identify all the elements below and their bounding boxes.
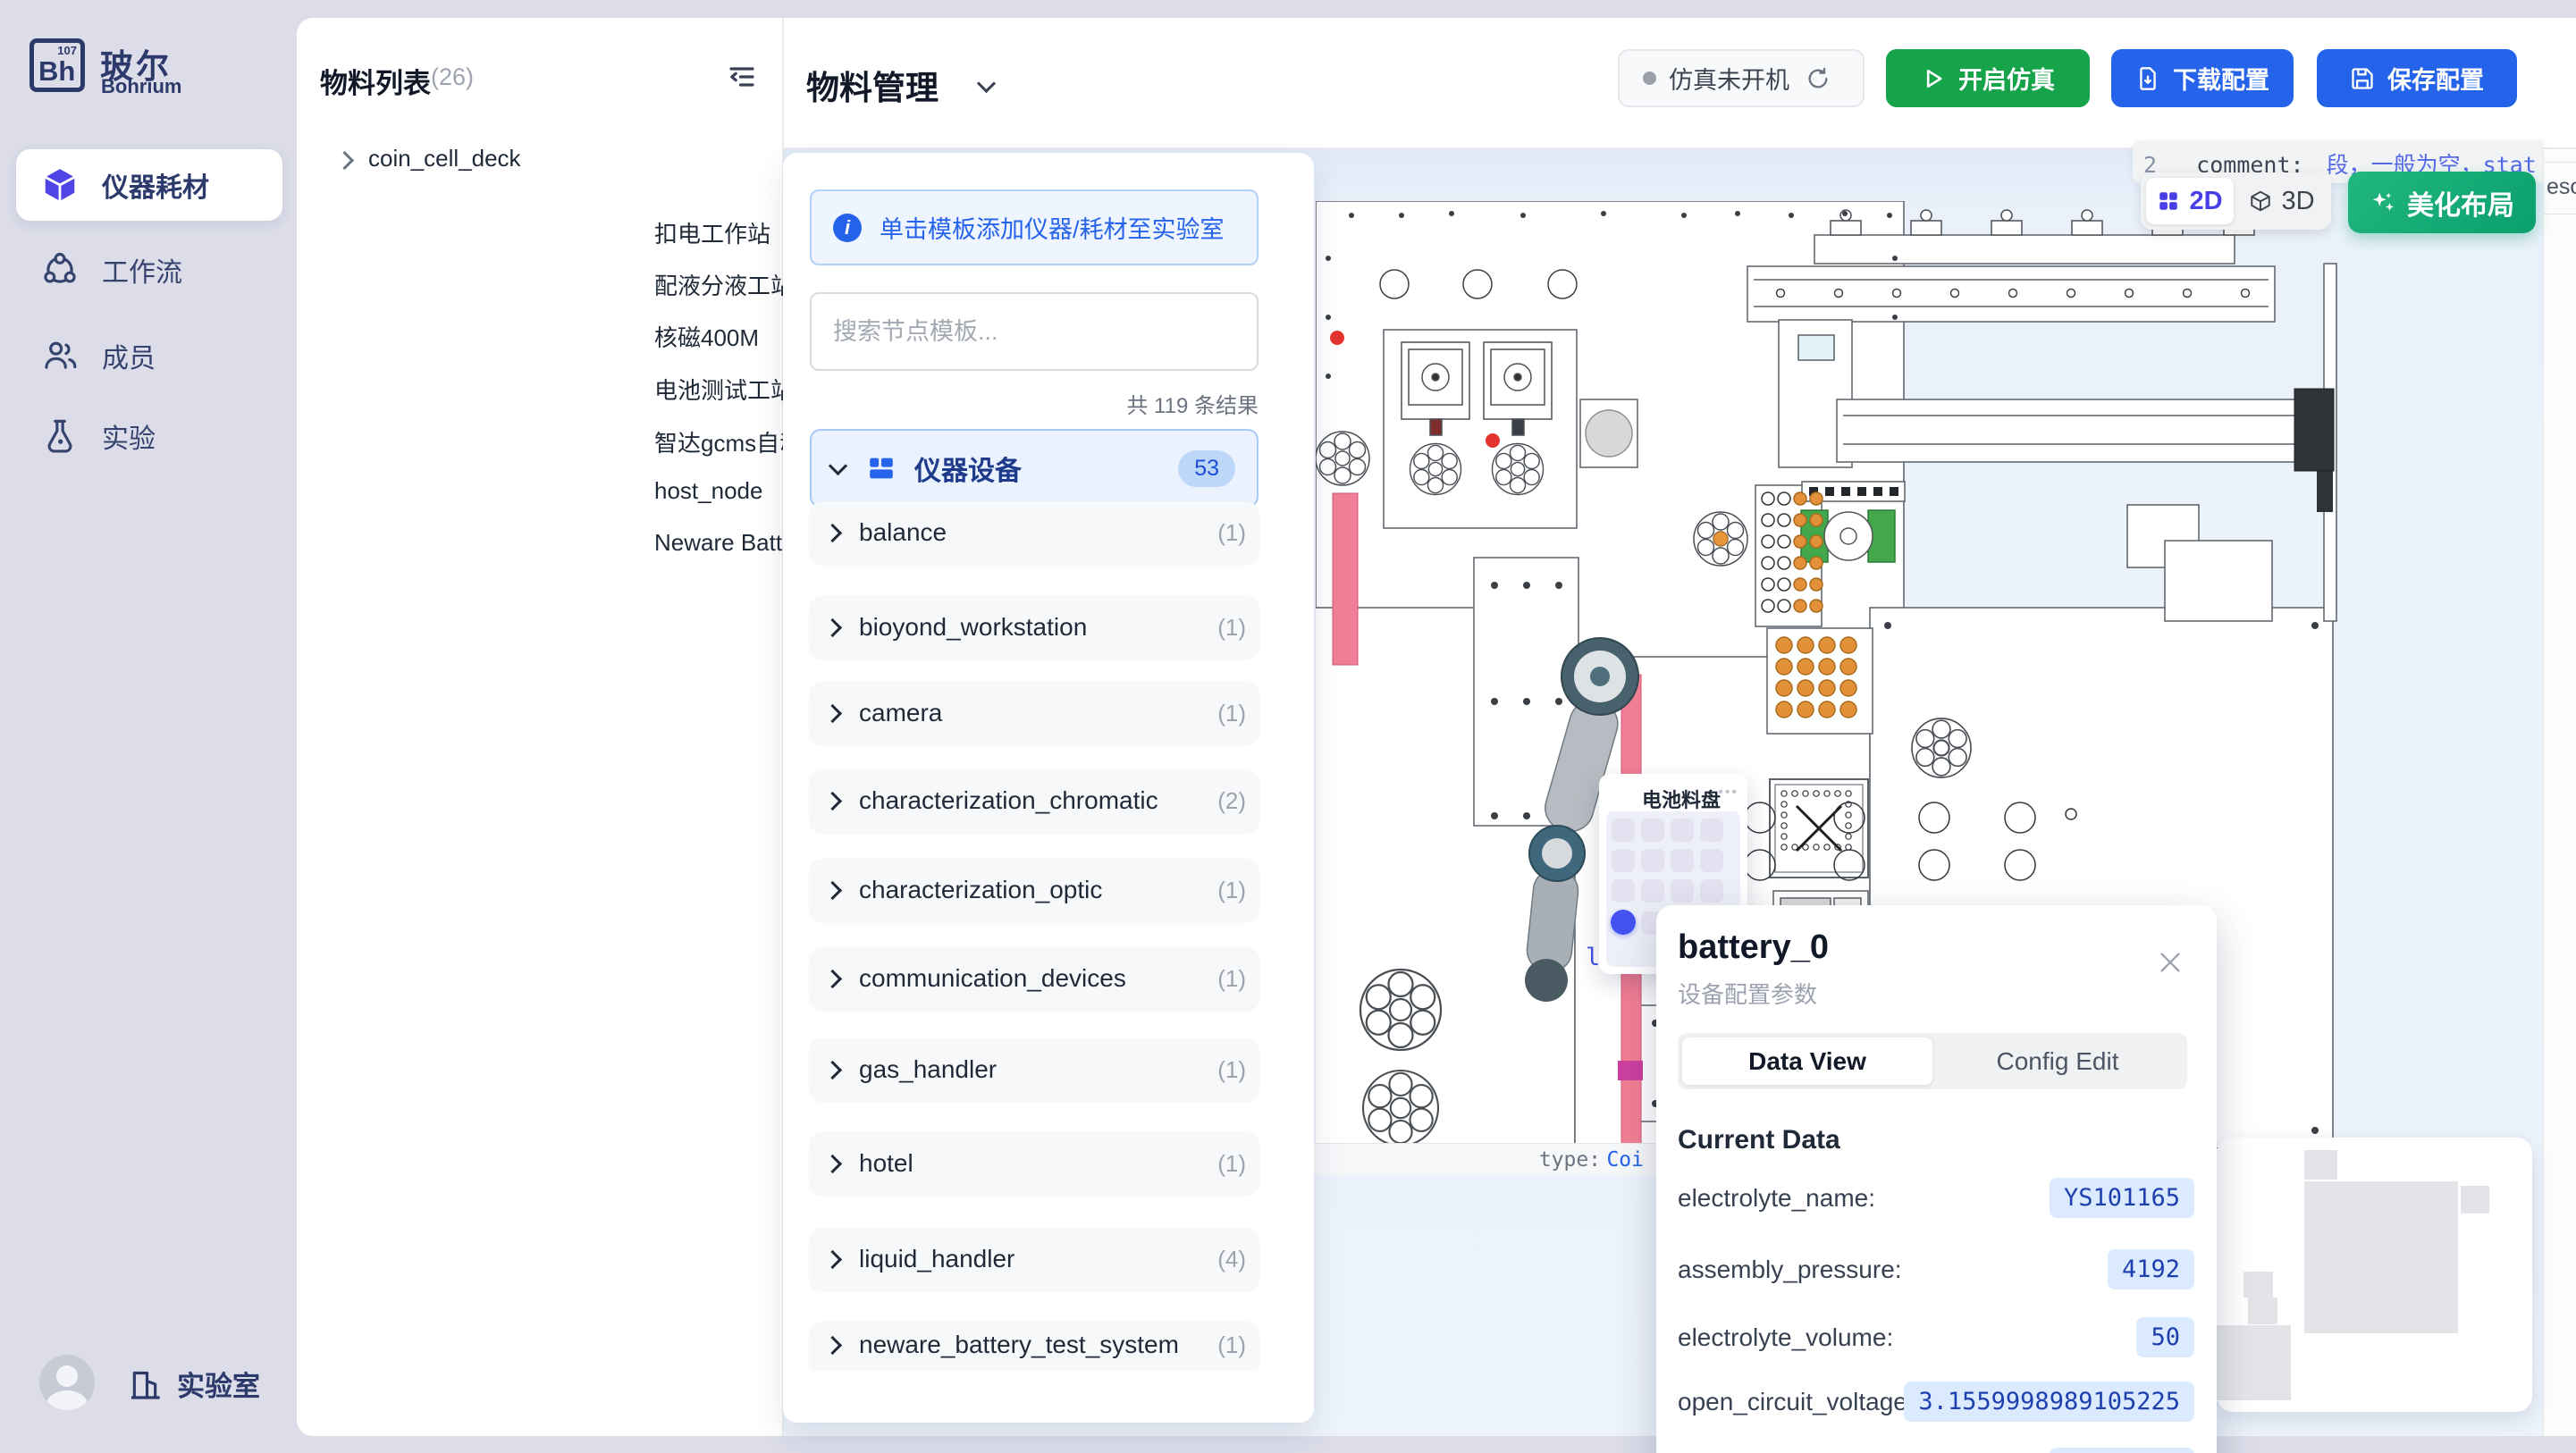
category-row[interactable]: gas_handler(1)	[810, 1038, 1259, 1101]
sparkles-icon	[2370, 189, 2396, 216]
group-label: 仪器设备	[914, 449, 1022, 488]
field-value: 4192	[2108, 1249, 2194, 1289]
save-config-button[interactable]: 保存配置	[2317, 49, 2517, 107]
minimap-block	[2304, 1150, 2337, 1180]
chevron-right-icon	[335, 151, 354, 170]
tray-slot[interactable]	[1641, 849, 1664, 872]
brand-name-en: Bohrium	[101, 75, 181, 98]
tray-slot[interactable]	[1700, 819, 1723, 842]
category-row[interactable]: communication_devices(1)	[810, 947, 1259, 1010]
popup-title: battery_0	[1678, 928, 1829, 967]
minimap[interactable]	[2217, 1138, 2532, 1412]
collapse-panel-icon[interactable]	[726, 61, 758, 97]
app-window: 107 Bh 玻尔 Bohrium 仪器耗材 工作流	[0, 0, 2576, 1453]
popup-subtitle: 设备配置参数	[1678, 977, 1817, 1010]
section-title: Current Data	[1678, 1125, 1840, 1155]
category-row[interactable]: characterization_optic(1)	[810, 859, 1259, 921]
device-detail-popup: battery_0 设备配置参数 Data View Config Edit C…	[1656, 905, 2217, 1453]
type-label: type:	[1539, 1148, 1601, 1172]
group-header-instruments[interactable]: 仪器设备 53	[810, 429, 1259, 508]
category-row[interactable]: characterization_chromatic(2)	[810, 769, 1259, 832]
beautify-layout-button[interactable]: 美化布局	[2348, 172, 2536, 233]
category-row[interactable]: bioyond_workstation(1)	[810, 596, 1259, 659]
tray-slot[interactable]	[1612, 819, 1635, 842]
sidebar-item-label: 实验	[102, 416, 156, 456]
chevron-down-icon	[829, 456, 847, 475]
type-value: Coi	[1606, 1148, 1644, 1172]
results-count: 共 119 条结果	[810, 388, 1259, 419]
refresh-icon[interactable]	[1806, 66, 1831, 91]
info-banner: i 单击模板添加仪器/耗材至实验室	[810, 189, 1259, 265]
start-simulation-button[interactable]: 开启仿真	[1886, 49, 2090, 107]
status-text: 仿真未开机	[1669, 61, 1789, 96]
minimap-block	[2304, 1181, 2458, 1333]
tab-config-edit[interactable]: Config Edit	[1932, 1037, 2183, 1085]
user-avatar[interactable]	[39, 1355, 95, 1410]
category-row[interactable]: balance(1)	[810, 501, 1259, 564]
tray-slot[interactable]	[1700, 879, 1723, 903]
members-icon	[41, 337, 79, 374]
material-row-expandable[interactable]: coin_cell_deck	[331, 141, 751, 181]
building-icon	[127, 1366, 163, 1402]
right-panel-sliver: esou	[2543, 149, 2576, 1436]
data-field-row: data_electrolyte_code: LG000014	[1678, 1448, 2194, 1453]
category-row[interactable]: camera(1)	[810, 682, 1259, 744]
category-row[interactable]: neware_battery_test_system(1)	[810, 1322, 1259, 1368]
materials-panel: 物料列表 (26) coin_cell_deck 扣电工作站 配液分液工站 核磁…	[297, 18, 782, 1436]
sidebar-item-label: 成员	[102, 336, 156, 375]
status-dot	[1643, 71, 1656, 85]
sidebar-item-workflow[interactable]: 工作流	[16, 234, 282, 306]
tray-slot[interactable]	[1612, 849, 1635, 872]
avatar-head	[56, 1365, 78, 1387]
grid-2d-icon	[2157, 189, 2180, 213]
close-icon[interactable]	[2156, 948, 2185, 977]
tray-slot[interactable]	[1671, 819, 1694, 842]
view-toggle: 2D 3D	[2141, 172, 2331, 230]
tray-slot[interactable]	[1671, 879, 1694, 903]
brand-logo: 107 Bh	[29, 38, 85, 92]
materials-title: 物料列表	[320, 61, 431, 101]
sidebar-item-members[interactable]: 成员	[16, 320, 282, 391]
data-field-row: electrolyte_name: YS101165	[1678, 1178, 2194, 1219]
group-badge: 53	[1178, 450, 1235, 487]
popup-tabs: Data View Config Edit	[1678, 1033, 2187, 1089]
material-label: coin_cell_deck	[368, 145, 521, 172]
download-config-button[interactable]: 下载配置	[2111, 49, 2294, 107]
play-icon	[1921, 66, 1946, 91]
minimap-block	[2461, 1186, 2489, 1214]
node-type-tooltip: type: Coi	[1315, 1143, 1656, 1175]
logo-abbr: Bh	[38, 55, 75, 88]
save-icon	[2350, 66, 2375, 91]
field-value: LG000014	[2050, 1448, 2194, 1453]
minimap-block	[2243, 1272, 2273, 1298]
info-banner-text: 单击模板添加仪器/耗材至实验室	[880, 210, 1225, 245]
sidebar-item-label: 工作流	[102, 250, 182, 290]
data-field-row: assembly_pressure: 4192	[1678, 1249, 2194, 1290]
download-doc-icon	[2135, 66, 2160, 91]
cube-3d-icon	[2249, 189, 2272, 213]
data-field-row: open_circuit_voltage: 3.1559998989105225	[1678, 1382, 2194, 1423]
tray-slot[interactable]	[1641, 819, 1664, 842]
template-panel: i 单击模板添加仪器/耗材至实验室 共 119 条结果 仪器设备 53 bala…	[783, 153, 1314, 1423]
toggle-3d[interactable]: 3D	[2239, 178, 2325, 224]
minimap-block	[2248, 1298, 2277, 1324]
field-value: 3.1559998989105225	[1904, 1382, 2194, 1422]
sidebar-item-experiments[interactable]: 实验	[16, 400, 282, 472]
tray-slot[interactable]	[1671, 849, 1694, 872]
category-row[interactable]: hotel(1)	[810, 1132, 1259, 1195]
tray-slot[interactable]	[1612, 879, 1635, 903]
category-row[interactable]: liquid_handler(4)	[810, 1228, 1259, 1290]
experiment-icon	[41, 417, 79, 455]
avatar-body	[46, 1390, 88, 1410]
sidebar-item-label: 仪器耗材	[102, 165, 209, 205]
tray-slot-selected[interactable]	[1611, 910, 1636, 935]
instruments-group-icon	[866, 453, 897, 483]
lab-switcher-label: 实验室	[177, 1364, 260, 1404]
tray-slot[interactable]	[1641, 879, 1664, 903]
field-value: 50	[2136, 1317, 2194, 1357]
sidebar-item-instruments[interactable]: 仪器耗材	[16, 149, 282, 221]
tray-popup-title: 电池料盘	[1642, 785, 1721, 813]
tray-slot[interactable]	[1700, 849, 1723, 872]
edge-text: esou	[2547, 174, 2576, 200]
simulation-status[interactable]: 仿真未开机	[1618, 49, 1865, 107]
info-icon: i	[833, 214, 862, 242]
materials-count: (26)	[431, 63, 474, 91]
field-value: YS101165	[2050, 1178, 2194, 1218]
tab-data-view[interactable]: Data View	[1682, 1037, 1932, 1085]
sidebar: 107 Bh 玻尔 Bohrium 仪器耗材 工作流	[0, 0, 297, 1453]
page-title: 物料管理	[806, 61, 939, 109]
cube-icon	[41, 166, 79, 204]
search-input[interactable]	[810, 292, 1259, 371]
minimap-block	[2217, 1325, 2291, 1400]
lab-switcher[interactable]: 实验室	[127, 1364, 260, 1404]
data-field-row: electrolyte_volume: 50	[1678, 1317, 2194, 1358]
tray-popup-menu-icon[interactable]: •••	[1718, 785, 1738, 801]
workflow-icon	[41, 251, 79, 289]
toggle-2d[interactable]: 2D	[2146, 178, 2234, 224]
